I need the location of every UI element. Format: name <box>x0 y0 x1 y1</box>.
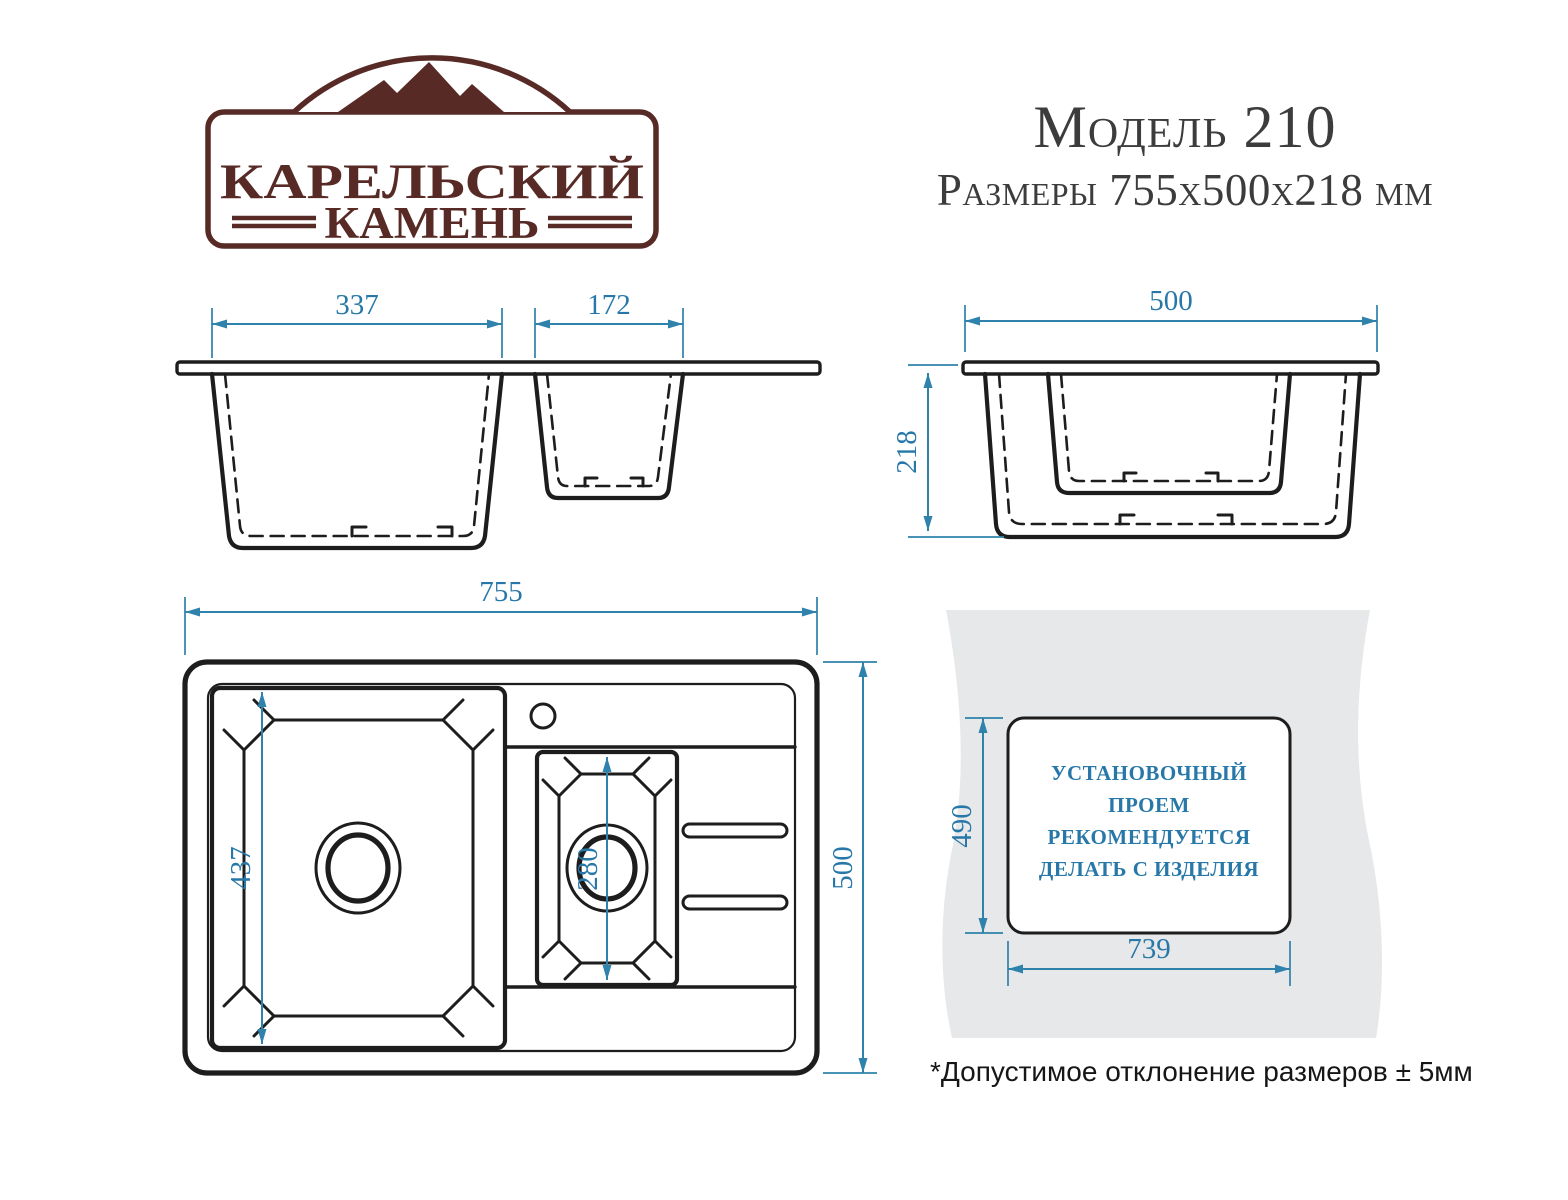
side-countertop-profile <box>963 362 1378 374</box>
dimension-plan-280: 280 <box>572 757 607 980</box>
sink-datasheet-page: 337 172 500 <box>0 0 1568 1200</box>
dim-label-337: 337 <box>335 289 379 321</box>
side-shallow-bowl-outline <box>1048 374 1290 493</box>
front-view: 337 172 <box>177 289 820 548</box>
plan-inner-edge <box>208 684 795 1051</box>
dimension-front-172: 172 <box>535 289 683 358</box>
brand-logo: КАРЕЛЬСКИЙ КАМЕНЬ <box>198 50 666 255</box>
dim-label-490: 490 <box>946 804 978 848</box>
dim-label-500-plan: 500 <box>827 846 859 890</box>
dimension-plan-755: 755 <box>185 576 817 655</box>
model-title: Модель 210 <box>840 96 1530 159</box>
dim-label-218: 218 <box>891 430 923 474</box>
dim-label-739: 739 <box>1127 933 1171 965</box>
install-text-line4: ДЕЛАТЬ С ИЗДЕЛИЯ <box>1039 857 1259 881</box>
dimension-front-337: 337 <box>212 289 502 358</box>
install-panel: УСТАНОВОЧНЫЙ ПРОЕМ РЕКОМЕНДУЕТСЯ ДЕЛАТЬ … <box>942 610 1382 1038</box>
dimension-side-500: 500 <box>965 285 1377 352</box>
install-text-line3: РЕКОМЕНДУЕТСЯ <box>1048 825 1251 849</box>
front-secondary-bowl-drain-marks <box>585 478 643 486</box>
dim-label-755: 755 <box>479 576 523 608</box>
main-drain-inner <box>328 835 388 901</box>
logo-word-bottom: КАМЕНЬ <box>325 198 540 248</box>
faucet-hole <box>531 704 555 728</box>
dimension-plan-500: 500 <box>823 662 877 1073</box>
title-block: Модель 210 Размеры 755x500x218 мм <box>840 96 1530 214</box>
drainboard-groove-top <box>683 824 787 837</box>
front-secondary-bowl-inner-dashed <box>547 374 671 486</box>
front-main-bowl-drain-marks <box>352 527 452 536</box>
side-view: 500 218 <box>891 285 1378 537</box>
side-deep-bowl-outline <box>985 374 1360 537</box>
dim-label-500-side: 500 <box>1149 285 1193 317</box>
tolerance-note: *Допустимое отклонение размеров ± 5мм <box>930 1056 1530 1088</box>
install-text-line1: УСТАНОВОЧНЫЙ <box>1051 761 1247 785</box>
dim-label-172: 172 <box>587 289 631 321</box>
front-countertop-profile <box>177 362 820 374</box>
dim-label-437: 437 <box>225 846 257 890</box>
plan-outer-rim <box>185 662 817 1073</box>
front-main-bowl-outline <box>212 374 502 548</box>
plan-view: 755 500 437 280 <box>185 576 877 1073</box>
brand-logo-graphic: КАРЕЛЬСКИЙ КАМЕНЬ <box>198 50 666 255</box>
side-shallow-bowl-inner-dashed <box>1061 374 1277 481</box>
front-main-bowl-inner-dashed <box>225 374 489 536</box>
install-text-line2: ПРОЕМ <box>1108 793 1190 817</box>
overall-dimensions: Размеры 755x500x218 мм <box>840 167 1530 214</box>
dim-label-280: 280 <box>572 847 604 891</box>
dimension-plan-437: 437 <box>225 692 262 1044</box>
drainboard-groove-bottom <box>683 896 787 909</box>
